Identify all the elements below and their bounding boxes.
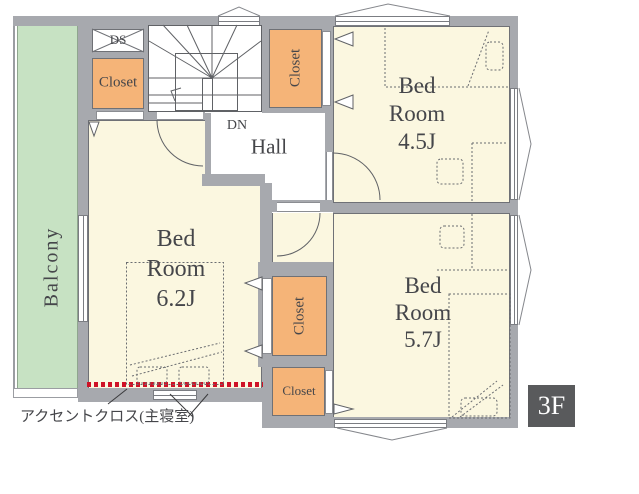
window-right-south [510, 215, 518, 325]
wall-room-divider [333, 203, 518, 213]
bedroom-master-notch [205, 186, 260, 203]
bedroom-master-label: Bed Room 6.2J [147, 224, 206, 314]
window-left-master [78, 215, 88, 322]
window-bottom-master [153, 390, 197, 400]
stairs-area [148, 25, 262, 113]
bay-top-stairs [218, 7, 260, 16]
duct-label: DS [110, 32, 127, 48]
closet-top-left-door [96, 111, 144, 120]
closet-center-label: Closet [292, 297, 309, 335]
wall-hall-left [205, 113, 211, 177]
closet-top-center-door [322, 31, 331, 106]
accent-cross-annotation: アクセントクロス(主寝室) [20, 405, 194, 426]
bedroom-master-door-gap [157, 111, 203, 120]
wall-master-right [260, 183, 272, 268]
window-bottom-south [334, 419, 447, 428]
bedroom-south-label: Bed Room 5.7J [395, 272, 451, 353]
stairs-down-label: DN [227, 118, 247, 134]
bay-right-east [519, 88, 531, 200]
bay-top-east [335, 4, 450, 16]
bedroom-east-label: Bed Room 4.5J [389, 72, 445, 156]
bedroom-south-extension [272, 213, 333, 262]
bedroom-east-door-gap [326, 152, 333, 200]
closet-bottom-door [325, 370, 333, 414]
balcony-rail-bottom [13, 388, 78, 398]
wall-left [78, 26, 88, 402]
window-top-stairs [218, 16, 260, 26]
balcony-rail-left [13, 20, 15, 398]
accent-cross-line [87, 382, 263, 387]
balcony-label: Balcony [41, 227, 64, 308]
bay-right-south [519, 215, 531, 325]
floor-badge: 3F [528, 385, 575, 427]
wall-hall-jog [202, 174, 265, 186]
closet-top-center-label: Closet [288, 49, 305, 87]
closet-center-door [262, 278, 272, 354]
closet-bottom-label: Closet [282, 383, 315, 399]
window-top-east [335, 16, 450, 26]
window-right-east [510, 88, 518, 200]
bedroom-south-door-gap [277, 202, 320, 212]
floor-plan: Balcony DS Closet Closet Closet Closet D… [0, 0, 639, 494]
closet-top-left-label: Closet [99, 75, 137, 92]
hall-label: Hall [251, 135, 287, 160]
balcony-area [17, 25, 78, 390]
bay-bottom-south [337, 428, 447, 440]
